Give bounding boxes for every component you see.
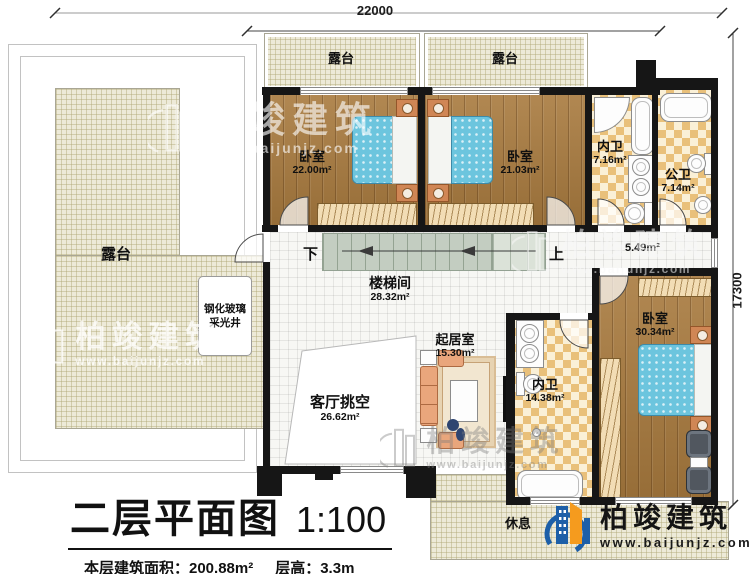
window	[432, 87, 540, 95]
coffee-table	[450, 380, 478, 422]
bed-pillow	[428, 116, 453, 184]
lightwell-label-line1: 钢化玻璃	[204, 302, 246, 316]
room-label-rest: 休息	[500, 517, 536, 532]
wall-segment	[506, 313, 515, 505]
door-opening	[660, 225, 686, 232]
floor-drain	[532, 428, 541, 437]
room-label-terrace-left: 露台	[85, 247, 147, 264]
room-label-bath-master2: 内卫 14.38m²	[510, 378, 580, 404]
armchair	[686, 430, 712, 458]
wall-segment	[652, 90, 658, 225]
floor-height-info: 层高：3.3m	[275, 560, 354, 574]
wall-segment	[418, 87, 425, 232]
lightwell-label-line2: 采光井	[209, 316, 241, 330]
plant-decor	[456, 428, 465, 441]
plan-scale: 1:100	[296, 499, 386, 541]
side-table	[420, 428, 437, 443]
room-label-terrace-top-right: 露台	[424, 52, 586, 67]
bed-pillow	[392, 116, 417, 184]
wall-segment	[592, 276, 599, 505]
room-label-bath-master1: 内卫 7.16m²	[580, 140, 640, 166]
door-opening	[547, 225, 575, 232]
room-label-bath-public: 公卫 7.14m²	[648, 168, 708, 194]
window	[711, 238, 718, 268]
window	[340, 466, 404, 474]
brand-logo-text: 柏竣建筑 www.baijunjz.com	[600, 504, 750, 550]
side-table	[690, 457, 708, 468]
nightstand	[690, 326, 713, 344]
door-opening	[560, 313, 588, 320]
brand-name: 柏竣建筑	[600, 504, 750, 532]
toilet	[624, 203, 645, 224]
floor-area-info: 本层建筑面积：200.88m²	[84, 560, 253, 574]
stair-down-label: 下	[303, 243, 318, 264]
plan-stats: 本层建筑面积：200.88m²层高：3.3m	[84, 557, 392, 574]
stair-flight	[322, 233, 494, 271]
bed	[638, 344, 696, 416]
rest-terrace-floor	[430, 474, 510, 503]
dimension-top-label: 22000	[345, 3, 405, 18]
nightstand	[396, 99, 418, 117]
dimension-right-label: 17300	[730, 261, 745, 321]
closet	[638, 278, 713, 297]
room-label-bedroom-mid: 卧室 21.03m²	[470, 150, 570, 176]
lightwell: 钢化玻璃 采光井	[198, 276, 252, 356]
hallway-area-label: 5.49m²	[625, 242, 660, 254]
wall-segment	[711, 90, 718, 505]
floor-plan: 钢化玻璃 采光井 露台 露台 露台 下 上	[0, 0, 750, 574]
title-row: 二层平面图 1:100	[68, 486, 392, 550]
room-label-bedroom-left: 卧室 22.00m²	[262, 150, 362, 176]
room-label-void: 客厅挑空 26.62m²	[288, 395, 392, 424]
nightstand	[427, 99, 449, 117]
brand-logo: 柏竣建筑 www.baijunjz.com	[536, 498, 750, 556]
sink	[694, 196, 712, 214]
page-title: 二层平面图	[70, 486, 280, 544]
bathtub	[660, 93, 712, 122]
wardrobe	[600, 358, 621, 499]
door-opening	[263, 232, 270, 262]
sofa	[420, 366, 438, 426]
terrace-left-floor	[55, 88, 180, 257]
nightstand	[396, 184, 418, 202]
door-opening	[598, 225, 624, 232]
sink	[520, 344, 539, 363]
nightstand	[427, 184, 449, 202]
sink	[520, 324, 539, 343]
wall-segment	[652, 78, 718, 90]
wall-pier	[406, 466, 436, 498]
wall-pier	[315, 466, 333, 480]
room-label-bedroom-right: 卧室 30.34m²	[618, 312, 692, 338]
stair-up-label: 上	[549, 243, 564, 264]
wall-segment	[262, 225, 592, 232]
room-label-living: 起居室 15.30m²	[415, 333, 495, 359]
window	[300, 87, 408, 95]
door-opening	[600, 268, 628, 276]
brand-url: www.baijunjz.com	[600, 535, 750, 550]
wall-segment	[263, 262, 270, 466]
stair-landing	[492, 233, 546, 271]
room-label-terrace-top-left: 露台	[264, 52, 418, 67]
brand-logo-icon	[536, 498, 594, 556]
room-label-stairwell: 楼梯间 28.32m²	[345, 276, 435, 303]
door-opening	[278, 225, 308, 232]
armchair	[686, 466, 712, 494]
title-block: 二层平面图 1:100 本层建筑面积：200.88m²层高：3.3m	[68, 486, 392, 574]
